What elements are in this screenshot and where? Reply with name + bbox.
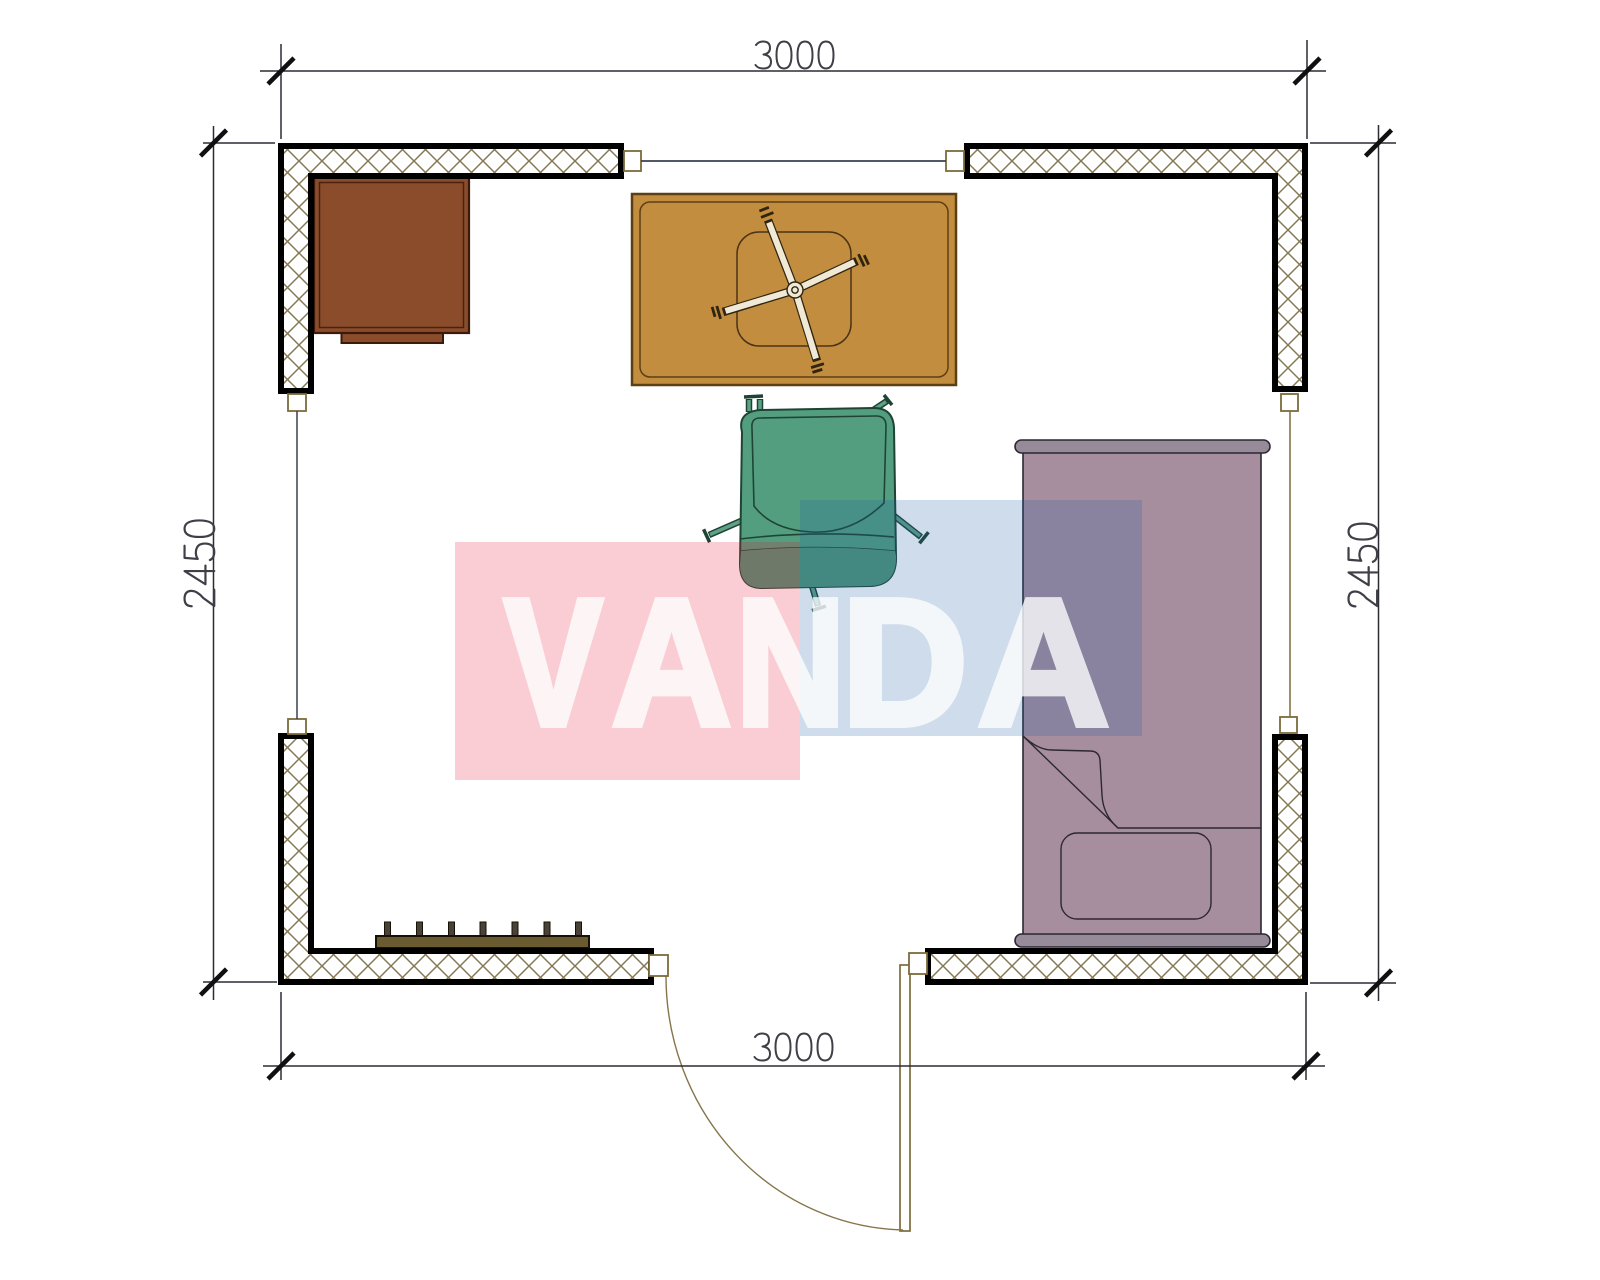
svg-text:D: D	[842, 562, 968, 763]
svg-text:V: V	[504, 561, 602, 763]
svg-text:A: A	[978, 562, 1109, 763]
svg-text:A: A	[612, 562, 731, 763]
svg-text:N: N	[736, 562, 845, 763]
